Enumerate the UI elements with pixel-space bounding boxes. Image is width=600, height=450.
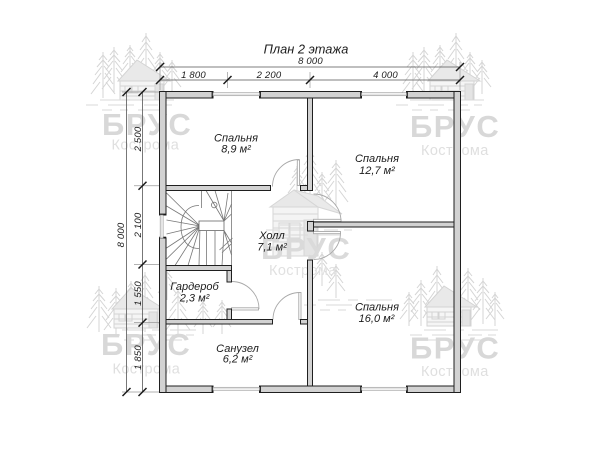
svg-text:Кострома: Кострома: [269, 263, 337, 279]
svg-text:План 2 этажа: План 2 этажа: [264, 41, 349, 56]
svg-text:2 200: 2 200: [256, 70, 282, 81]
svg-text:Холл: Холл: [258, 230, 284, 242]
svg-text:1 850: 1 850: [133, 345, 144, 370]
svg-text:Спальня: Спальня: [355, 302, 399, 314]
svg-text:Кострома: Кострома: [113, 362, 181, 378]
svg-text:2 100: 2 100: [133, 212, 144, 238]
svg-text:2 500: 2 500: [133, 126, 144, 152]
svg-text:Спальня: Спальня: [214, 132, 258, 144]
svg-text:8,9 м²: 8,9 м²: [221, 144, 251, 156]
svg-text:Гардероб: Гардероб: [170, 281, 219, 293]
svg-text:2,3 м²: 2,3 м²: [179, 293, 210, 305]
svg-text:БРУС: БРУС: [101, 327, 191, 362]
svg-text:8 000: 8 000: [116, 222, 127, 247]
svg-text:6,2 м²: 6,2 м²: [223, 354, 253, 366]
svg-text:7,1 м²: 7,1 м²: [257, 242, 287, 254]
svg-text:1 800: 1 800: [181, 70, 206, 81]
svg-text:4 000: 4 000: [373, 70, 398, 81]
svg-text:8 000: 8 000: [298, 56, 323, 67]
svg-text:16,0 м²: 16,0 м²: [359, 313, 395, 325]
svg-text:1 550: 1 550: [133, 281, 144, 306]
svg-text:Кострома: Кострома: [112, 138, 180, 154]
svg-text:12,7 м²: 12,7 м²: [359, 165, 395, 177]
svg-text:Спальня: Спальня: [355, 153, 399, 165]
